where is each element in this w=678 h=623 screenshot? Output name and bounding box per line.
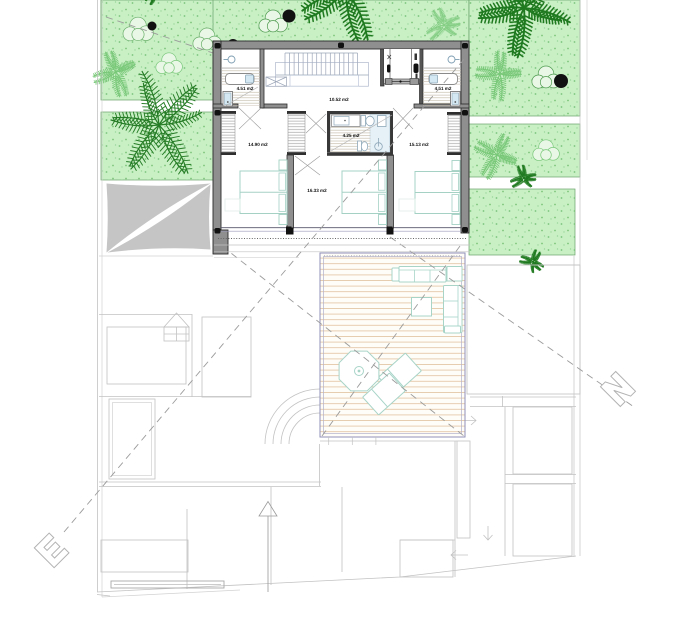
svg-text:16.33 m2: 16.33 m2 xyxy=(307,188,327,193)
svg-text:15.13 m2: 15.13 m2 xyxy=(409,142,429,147)
svg-text:4.51 m2: 4.51 m2 xyxy=(237,86,254,91)
svg-text:10.52 m2: 10.52 m2 xyxy=(329,97,349,102)
svg-text:4.25 m2: 4.25 m2 xyxy=(343,133,360,138)
svg-text:14.90 m2: 14.90 m2 xyxy=(248,142,268,147)
